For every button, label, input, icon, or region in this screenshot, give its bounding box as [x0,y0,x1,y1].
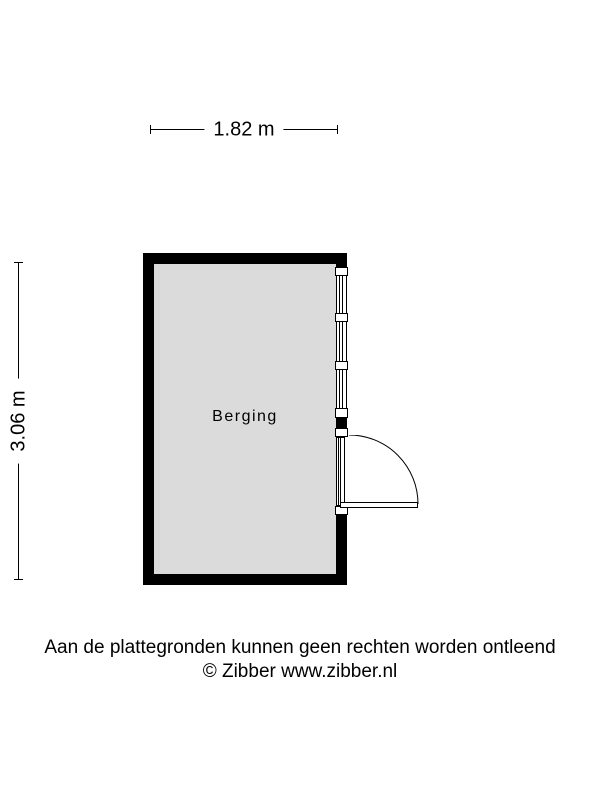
room-berging: Berging [143,253,347,585]
footer-disclaimer: Aan de plattegronden kunnen geen rechten… [0,636,600,660]
window-mullion [335,408,348,418]
window-mullion [335,361,348,370]
footer: Aan de plattegronden kunnen geen rechten… [0,636,600,684]
width-dimension-label: 1.82 m [204,118,283,141]
window-mullion [335,313,348,322]
dimension-tick-right [337,125,338,134]
door-jamb [336,437,345,506]
floorplan-canvas: 1.82 m 3.06 m Berging Aan [0,0,600,800]
width-dimension: 1.82 m [150,117,338,142]
dimension-tick-left [150,125,151,134]
window-glass-line [342,268,343,417]
dimension-tick-bottom [14,579,23,580]
height-dimension: 3.06 m [8,262,29,580]
window-icon [336,267,347,418]
window-glass-line [339,268,340,417]
door-swing-arc [348,435,419,506]
room-label: Berging [154,408,336,426]
window-mullion [335,267,348,276]
door-leaf [340,502,418,508]
footer-copyright: © Zibber www.zibber.nl [0,660,600,684]
dimension-tick-top [14,262,23,263]
height-dimension-label: 3.06 m [7,378,30,463]
door-frame-post [335,428,348,437]
